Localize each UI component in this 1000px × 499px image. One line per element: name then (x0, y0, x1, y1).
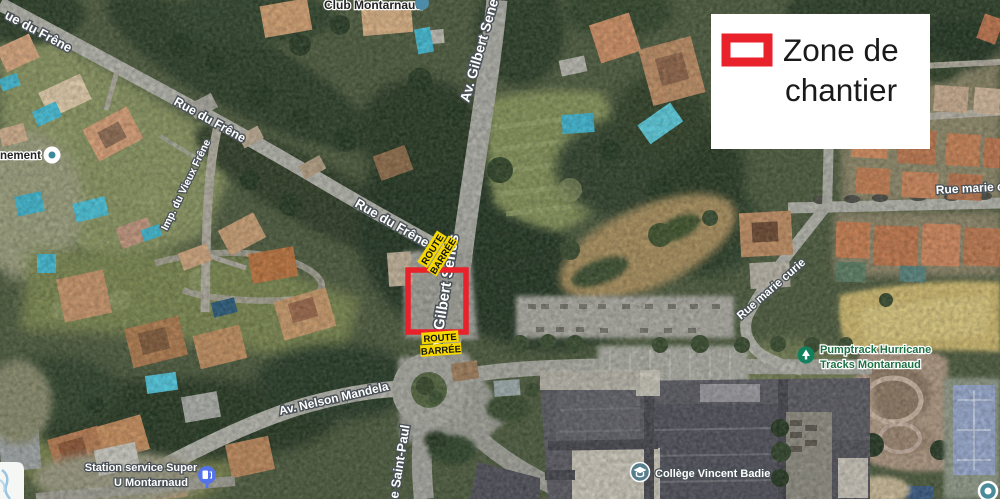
svg-text:Tracks Montarnaud: Tracks Montarnaud (820, 359, 921, 371)
svg-text:ROUTE: ROUTE (423, 332, 457, 345)
svg-text:nement: nement (0, 150, 41, 162)
svg-text:Zone de: Zone de (783, 32, 899, 68)
svg-text:Pumptrack Hurricane: Pumptrack Hurricane (820, 344, 931, 356)
svg-text:Station service Super: Station service Super (85, 462, 198, 474)
svg-text:Collège Vincent Badie: Collège Vincent Badie (655, 468, 770, 480)
svg-text:chantier: chantier (785, 72, 897, 108)
svg-text:U Montarnaud: U Montarnaud (114, 477, 188, 489)
svg-text:Club Montarnaud: Club Montarnaud (324, 0, 423, 12)
